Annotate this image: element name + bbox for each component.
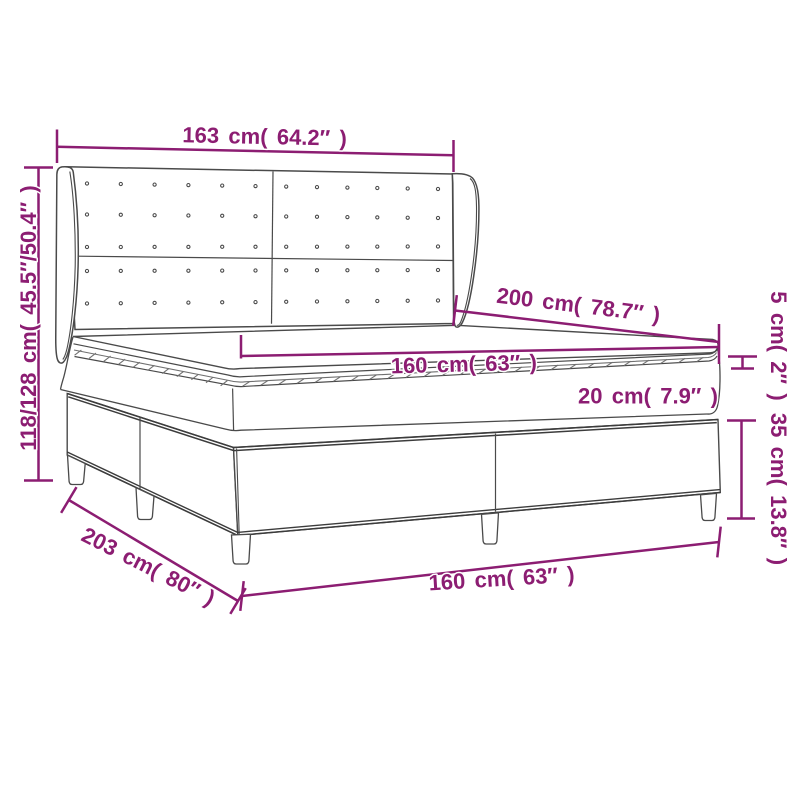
svg-text:163 cm( 64.2″ ): 163 cm( 64.2″ ) <box>182 122 347 150</box>
svg-text:160 cm( 63″ ): 160 cm( 63″ ) <box>390 350 537 379</box>
svg-text:35 cm( 13.8″ ): 35 cm( 13.8″ ) <box>766 413 791 565</box>
svg-text:118/128 cm( 45.5″/50.4″ ): 118/128 cm( 45.5″/50.4″ ) <box>16 185 41 451</box>
svg-text:20 cm( 7.9″ ): 20 cm( 7.9″ ) <box>578 384 718 409</box>
svg-text:5 cm( 2″ ): 5 cm( 2″ ) <box>766 291 791 400</box>
